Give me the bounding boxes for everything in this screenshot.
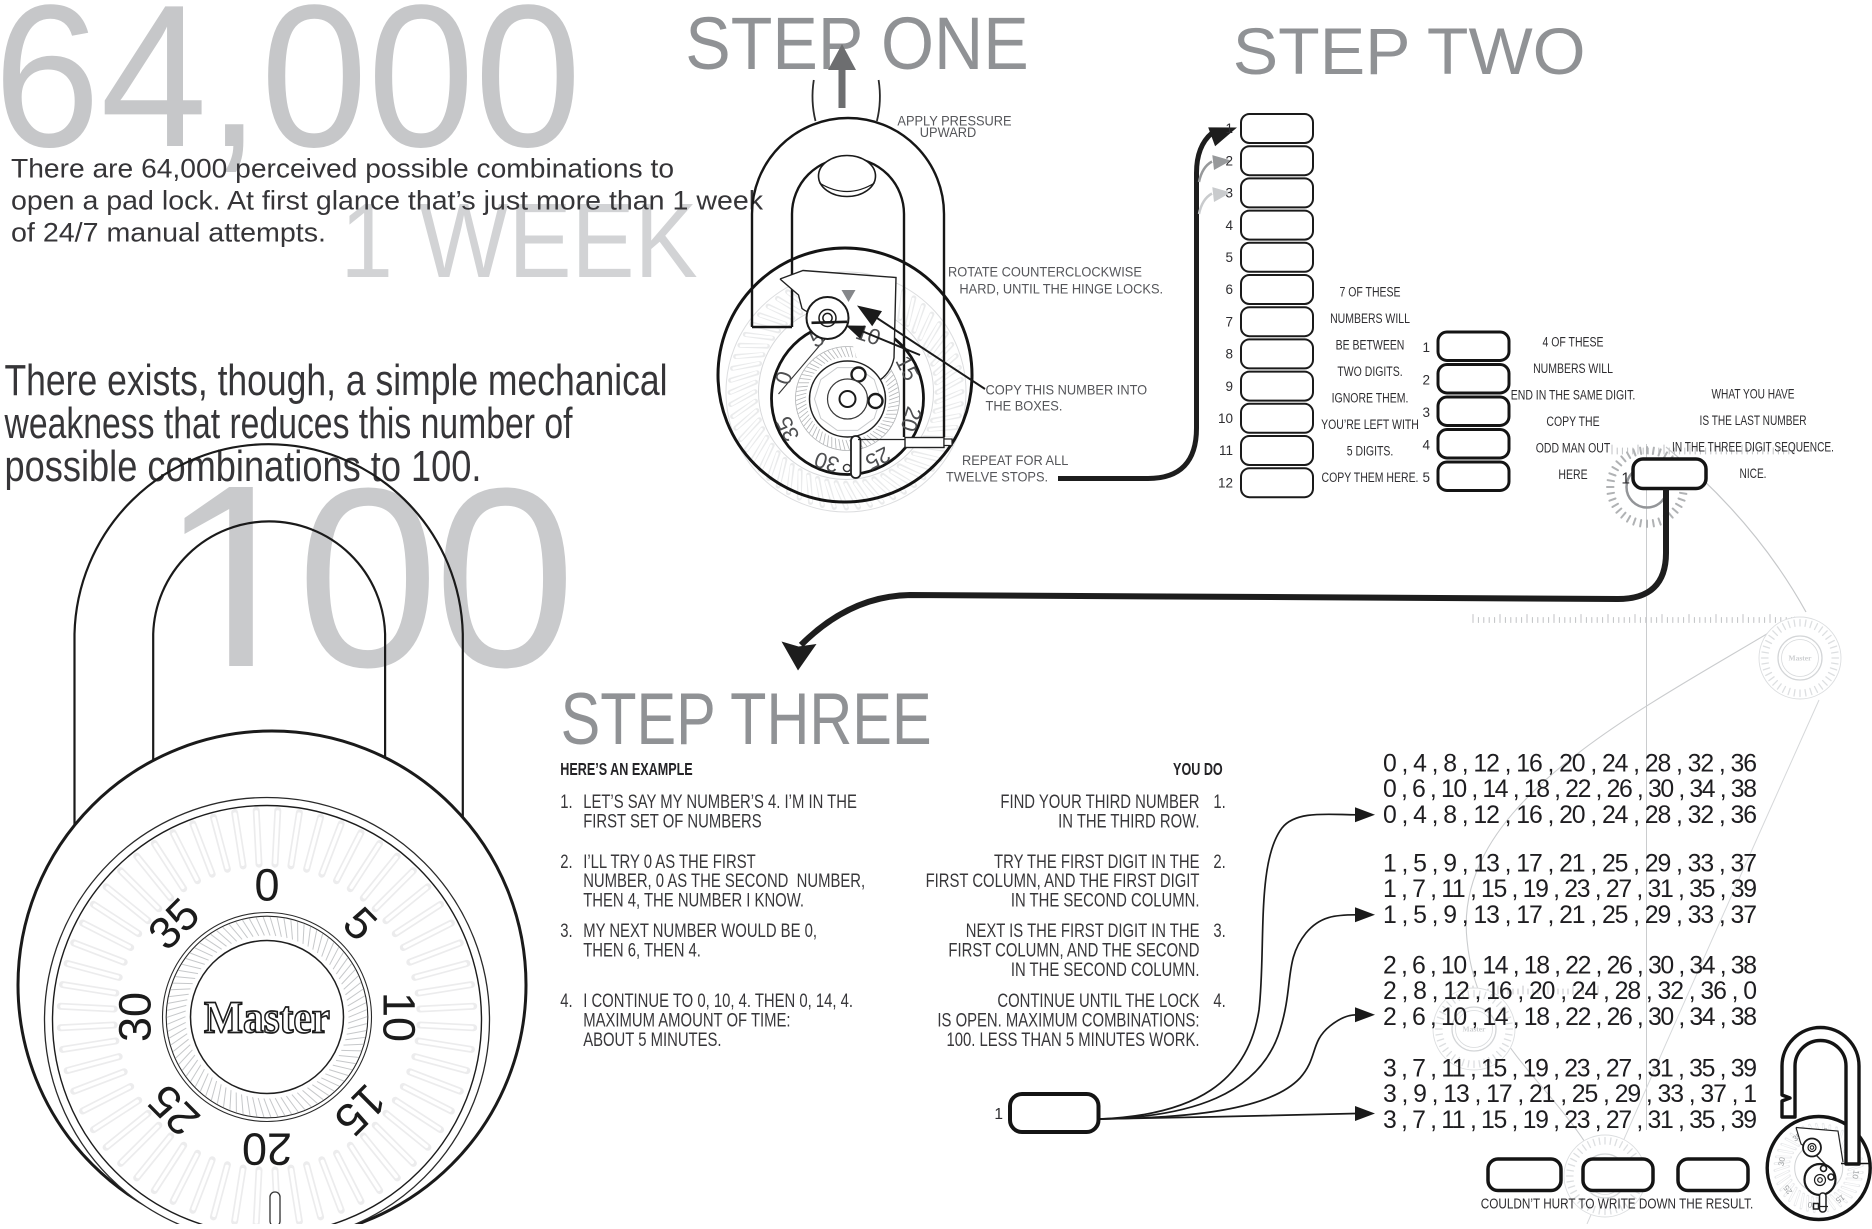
svg-text:3.: 3. [560,919,572,942]
svg-text:NUMBERS WILL: NUMBERS WILL [1533,361,1613,377]
svg-text:IN THE THREE DIGIT SEQUENCE.: IN THE THREE DIGIT SEQUENCE. [1672,439,1834,455]
svg-text:1: 1 [1621,471,1630,488]
svg-text:ODD MAN OUT: ODD MAN OUT [1536,440,1611,456]
svg-text:There are 64,000 perceived pos: There are 64,000 perceived possible comb… [11,153,674,184]
svg-text:YOU’RE LEFT WITH: YOU’RE LEFT WITH [1321,417,1419,433]
svg-text:1: 1 [1225,121,1233,136]
svg-text:REPEAT FOR ALL: REPEAT FOR ALL [962,453,1068,468]
svg-text:5: 5 [1422,470,1430,485]
svg-text:HERE’S AN EXAMPLE: HERE’S AN EXAMPLE [560,760,692,780]
svg-text:YOU DO: YOU DO [1173,760,1223,780]
svg-text:IS THE LAST NUMBER: IS THE LAST NUMBER [1700,413,1807,429]
svg-text:0 , 4 , 8 , 12 , 16 , 20 , 24: 0 , 4 , 8 , 12 , 16 , 20 , 24 , 28 , 32 … [1383,802,1757,829]
svg-text:3 , 7 , 11 , 15 , 19 , 23 , 27: 3 , 7 , 11 , 15 , 19 , 23 , 27 , 31 , 35… [1383,1107,1757,1134]
svg-text:10: 10 [374,992,425,1042]
svg-text:4: 4 [1225,218,1233,233]
svg-text:ROTATE COUNTERCLOCKWISE: ROTATE COUNTERCLOCKWISE [948,264,1142,279]
svg-text:2.: 2. [1213,850,1225,873]
svg-text:UPWARD: UPWARD [920,125,976,140]
svg-text:TWELVE STOPS.: TWELVE STOPS. [946,469,1048,484]
svg-text:4.: 4. [1213,989,1225,1012]
svg-text:IN THE SECOND COLUMN.: IN THE SECOND COLUMN. [1011,958,1200,981]
svg-text:There exists, though, a simple: There exists, though, a simple mechanica… [5,357,668,405]
svg-text:HERE: HERE [1558,467,1587,483]
svg-text:3.: 3. [1213,919,1225,942]
svg-text:2 , 8 , 12 , 16 , 20 , 24 , 28: 2 , 8 , 12 , 16 , 20 , 24 , 28 , 32 , 36… [1383,978,1757,1005]
svg-text:1: 1 [994,1106,1003,1123]
svg-text:THEN 4, THE NUMBER I KNOW.: THEN 4, THE NUMBER I KNOW. [583,888,804,911]
svg-text:8: 8 [1225,347,1233,362]
svg-text:IN THE SECOND COLUMN.: IN THE SECOND COLUMN. [1011,888,1200,911]
svg-text:2.: 2. [560,850,572,873]
svg-text:FIRST SET OF NUMBERS: FIRST SET OF NUMBERS [583,809,761,832]
svg-text:TWO DIGITS.: TWO DIGITS. [1337,364,1402,380]
svg-text:END IN THE SAME DIGIT.: END IN THE SAME DIGIT. [1511,387,1636,403]
svg-text:7 OF THESE: 7 OF THESE [1339,284,1400,300]
svg-text:30: 30 [110,992,161,1042]
svg-text:3: 3 [1225,186,1233,201]
svg-text:100. LESS THAN 5 MINUTES WORK.: 100. LESS THAN 5 MINUTES WORK. [946,1028,1199,1051]
svg-text:0 , 6 , 10 , 14 , 18 , 22 , 26: 0 , 6 , 10 , 14 , 18 , 22 , 26 , 30 , 34… [1383,776,1757,803]
svg-text:open a pad lock. At first glan: open a pad lock. At first glance that’s … [11,185,763,216]
svg-text:11: 11 [1219,443,1233,458]
svg-text:IGNORE THEM.: IGNORE THEM. [1332,390,1409,406]
svg-text:3 , 7 , 11 , 15 , 19 , 23 , 27: 3 , 7 , 11 , 15 , 19 , 23 , 27 , 31 , 35… [1383,1056,1757,1083]
svg-text:10: 10 [1218,411,1233,426]
svg-text:Master: Master [204,992,330,1043]
svg-text:4: 4 [1422,437,1430,452]
svg-text:BE BETWEEN: BE BETWEEN [1336,337,1405,353]
svg-text:COULDN’T HURT TO WRITE DOWN TH: COULDN’T HURT TO WRITE DOWN THE RESULT. [1481,1195,1753,1211]
svg-text:0: 0 [254,860,279,911]
svg-text:12: 12 [1218,475,1233,490]
svg-text:9: 9 [1225,379,1233,394]
svg-text:1 , 5 , 9 , 13 , 17 , 21 , 25: 1 , 5 , 9 , 13 , 17 , 21 , 25 , 29 , 33 … [1383,851,1757,878]
svg-text:WHAT YOU HAVE: WHAT YOU HAVE [1711,386,1794,402]
svg-text:5: 5 [1225,250,1233,265]
svg-text:HARD, UNTIL THE HINGE LOCKS.: HARD, UNTIL THE HINGE LOCKS. [959,281,1163,296]
svg-text:of 24/7 manual attempts.: of 24/7 manual attempts. [11,217,326,248]
svg-text:THE BOXES.: THE BOXES. [986,398,1063,413]
svg-text:NICE.: NICE. [1740,466,1767,482]
svg-text:weakness that reduces this num: weakness that reduces this number of [4,400,573,448]
svg-text:NUMBERS WILL: NUMBERS WILL [1330,311,1410,327]
svg-text:1: 1 [1422,340,1430,355]
svg-text:2 , 6 , 10 , 14 , 18 , 22 , 26: 2 , 6 , 10 , 14 , 18 , 22 , 26 , 30 , 34… [1383,1004,1757,1031]
svg-text:3 , 9 , 13 , 17 , 21 , 25 , 29: 3 , 9 , 13 , 17 , 21 , 25 , 29 , 33 , 37… [1383,1081,1757,1108]
svg-text:STEP ONE: STEP ONE [685,2,1028,85]
svg-text:20: 20 [242,1124,292,1175]
svg-text:3: 3 [1422,405,1430,420]
svg-text:1.: 1. [560,790,572,813]
svg-text:STEP TWO: STEP TWO [1233,15,1586,89]
svg-text:4 OF THESE: 4 OF THESE [1542,334,1603,350]
svg-text:ABOUT 5 MINUTES.: ABOUT 5 MINUTES. [583,1028,721,1051]
svg-text:7: 7 [1225,314,1233,329]
svg-text:THEN 6, THEN 4.: THEN 6, THEN 4. [583,938,701,961]
svg-text:0 , 4 , 8 , 12 , 16 , 20 , 24: 0 , 4 , 8 , 12 , 16 , 20 , 24 , 28 , 32 … [1383,751,1757,778]
svg-text:COPY THEM HERE.: COPY THEM HERE. [1322,470,1419,486]
svg-text:4.: 4. [560,989,572,1012]
svg-text:2 , 6 , 10 , 14 , 18 , 22 , 26: 2 , 6 , 10 , 14 , 18 , 22 , 26 , 30 , 34… [1383,953,1757,980]
svg-text:2: 2 [1422,372,1430,387]
svg-text:possible combinations to 100.: possible combinations to 100. [5,443,482,491]
svg-text:STEP THREE: STEP THREE [561,678,932,760]
svg-text:6: 6 [1225,282,1233,297]
svg-text:COPY THIS NUMBER INTO: COPY THIS NUMBER INTO [986,382,1148,397]
svg-text:Master: Master [1789,654,1813,663]
svg-text:1.: 1. [1213,790,1225,813]
svg-text:1 , 7 , 11 , 15 , 19 , 23 , 27: 1 , 7 , 11 , 15 , 19 , 23 , 27 , 31 , 35… [1383,876,1757,903]
svg-text:COPY THE: COPY THE [1546,414,1599,430]
svg-text:2: 2 [1225,153,1233,168]
svg-text:5 DIGITS.: 5 DIGITS. [1347,443,1394,459]
svg-text:1 , 5 , 9 , 13 , 17 , 21 , 25: 1 , 5 , 9 , 13 , 17 , 21 , 25 , 29 , 33 … [1383,902,1757,929]
svg-text:IN THE THIRD ROW.: IN THE THIRD ROW. [1058,809,1199,832]
